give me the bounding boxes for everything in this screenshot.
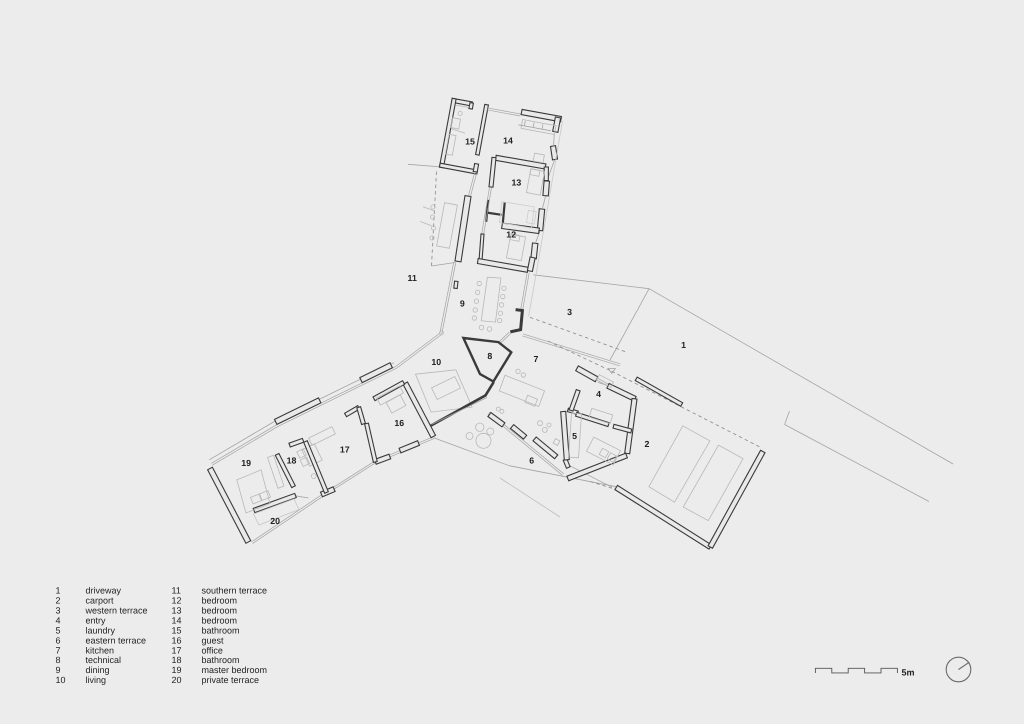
svg-text:18: 18 [172, 655, 182, 665]
svg-text:19: 19 [241, 458, 251, 468]
svg-text:11: 11 [172, 586, 181, 596]
svg-text:12: 12 [172, 596, 182, 606]
svg-text:20: 20 [172, 675, 182, 685]
svg-text:driveway: driveway [86, 586, 122, 596]
svg-text:18: 18 [287, 455, 297, 465]
svg-text:bedroom: bedroom [202, 606, 238, 616]
svg-text:3: 3 [567, 307, 572, 317]
svg-text:guest: guest [202, 635, 225, 645]
svg-text:6: 6 [56, 635, 61, 645]
svg-text:8: 8 [487, 351, 492, 361]
svg-text:8: 8 [56, 655, 61, 665]
svg-text:19: 19 [172, 665, 182, 675]
svg-text:7: 7 [533, 354, 538, 364]
svg-text:13: 13 [172, 606, 182, 616]
svg-text:carport: carport [86, 596, 115, 606]
svg-text:13: 13 [512, 177, 522, 187]
svg-text:7: 7 [56, 645, 61, 655]
svg-text:bedroom: bedroom [202, 616, 238, 626]
svg-text:17: 17 [172, 645, 182, 655]
svg-text:5: 5 [572, 431, 577, 441]
svg-text:private terrace: private terrace [202, 675, 260, 685]
svg-text:entry: entry [86, 616, 107, 626]
svg-text:bathroom: bathroom [202, 625, 240, 635]
svg-text:bedroom: bedroom [202, 596, 238, 606]
svg-text:10: 10 [56, 675, 66, 685]
svg-text:5: 5 [56, 625, 61, 635]
svg-text:technical: technical [86, 655, 122, 665]
svg-text:dining: dining [86, 665, 110, 675]
svg-text:1: 1 [56, 586, 61, 596]
svg-text:14: 14 [503, 136, 513, 146]
svg-text:western terrace: western terrace [85, 606, 148, 616]
svg-text:15: 15 [465, 137, 475, 147]
svg-text:4: 4 [596, 389, 601, 399]
svg-text:20: 20 [270, 516, 280, 526]
svg-text:1: 1 [681, 340, 686, 350]
svg-text:2: 2 [644, 439, 649, 449]
svg-text:9: 9 [56, 665, 61, 675]
svg-text:eastern terrace: eastern terrace [86, 635, 147, 645]
svg-text:southern terrace: southern terrace [202, 586, 268, 596]
svg-text:16: 16 [172, 635, 182, 645]
svg-text:master bedroom: master bedroom [202, 665, 268, 675]
svg-text:4: 4 [56, 616, 61, 626]
svg-text:10: 10 [431, 357, 441, 367]
svg-text:bathroom: bathroom [202, 655, 240, 665]
svg-text:16: 16 [394, 418, 404, 428]
svg-text:laundry: laundry [86, 625, 116, 635]
svg-text:9: 9 [460, 298, 465, 308]
svg-text:6: 6 [529, 456, 534, 466]
svg-text:15: 15 [172, 625, 182, 635]
svg-text:kitchen: kitchen [86, 645, 115, 655]
svg-text:14: 14 [172, 616, 182, 626]
svg-text:17: 17 [340, 445, 350, 455]
svg-text:3: 3 [56, 606, 61, 616]
svg-text:office: office [202, 645, 223, 655]
svg-text:living: living [86, 675, 107, 685]
svg-text:5m: 5m [902, 667, 915, 677]
svg-text:12: 12 [506, 230, 516, 240]
svg-text:2: 2 [56, 596, 61, 606]
svg-text:11: 11 [408, 273, 417, 283]
